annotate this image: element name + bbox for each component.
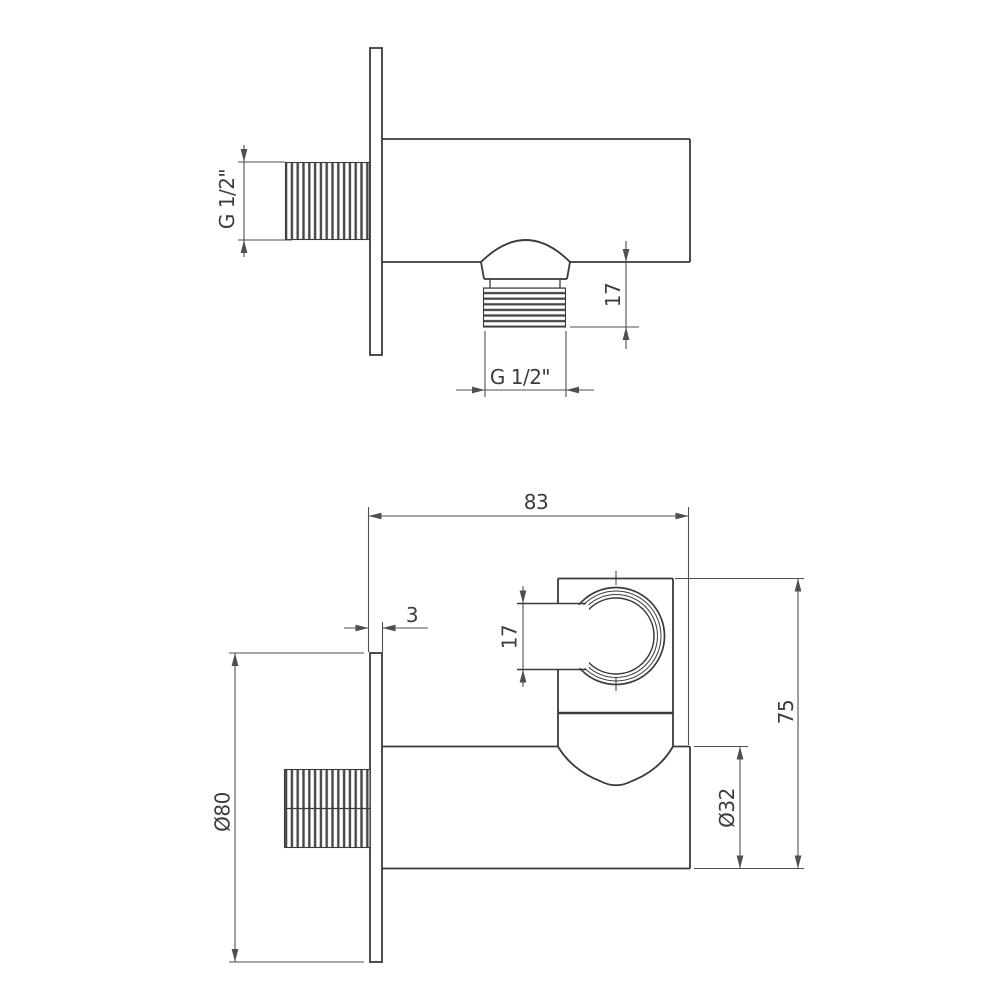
technical-drawing-page: G 1/2" 17 G 1/2" — [0, 0, 1000, 1000]
inlet-thread-side — [286, 163, 370, 240]
outlet-thread-side — [484, 288, 566, 327]
label-inlet-thread: G 1/2" — [215, 169, 239, 229]
label-body-diameter: Ø32 — [715, 788, 739, 828]
shower-connector-dimension-drawing: G 1/2" 17 G 1/2" — [0, 0, 1000, 1000]
label-total-height: 75 — [774, 700, 798, 724]
label-holder-slot-height: 17 — [498, 625, 522, 649]
label-plate-thickness: 3 — [406, 603, 418, 627]
wall-plate-front — [370, 653, 382, 962]
label-outlet-thread: G 1/2" — [490, 365, 550, 389]
wall-plate-side — [370, 48, 382, 355]
label-width: 83 — [524, 490, 548, 514]
ring-opening-mask — [556, 605, 589, 668]
drawing-background — [0, 0, 1000, 1000]
label-flange-diameter: Ø80 — [211, 792, 235, 832]
label-outlet-depth: 17 — [601, 283, 625, 307]
